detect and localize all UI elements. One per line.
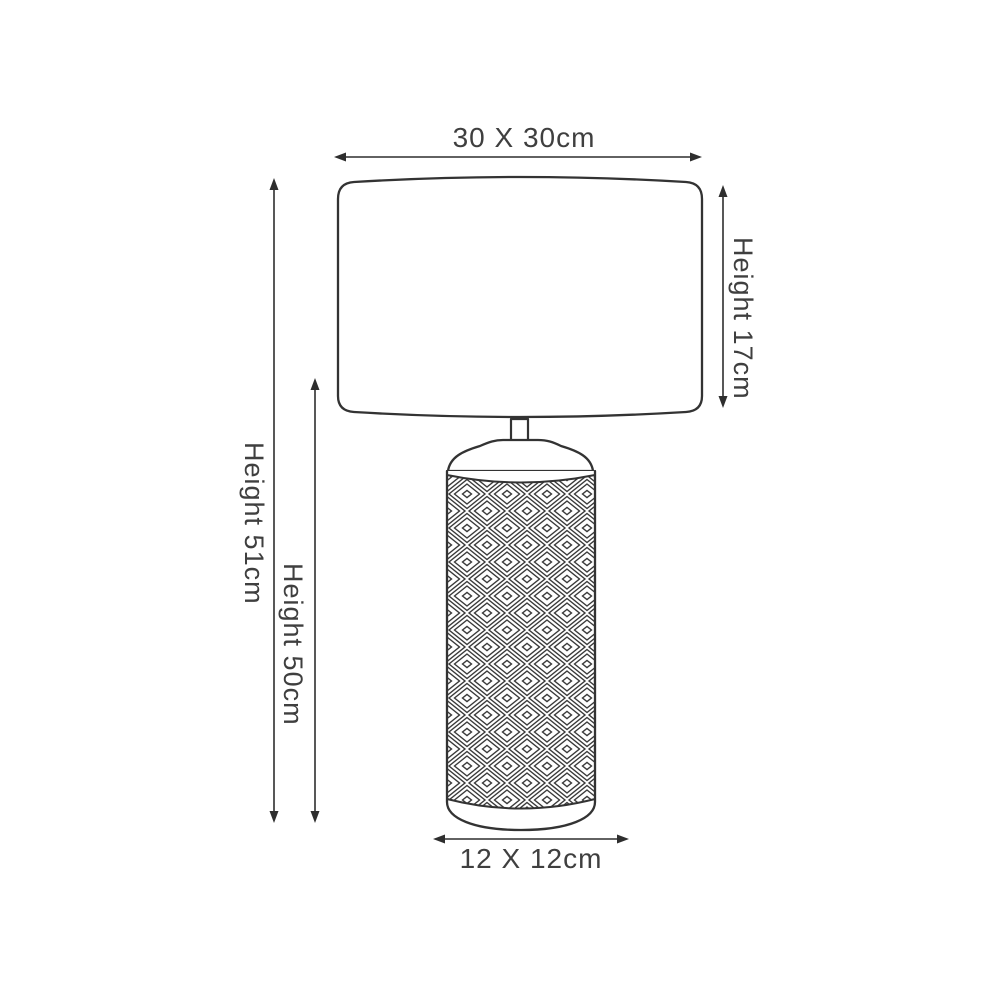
base-height-label: Height 50cm bbox=[279, 563, 306, 726]
dimension-diagram-canvas: 30 X 30cm Height 17cm Height 51cm Height… bbox=[0, 0, 1000, 1000]
shade-height-arrow bbox=[719, 185, 728, 408]
base-width-label: 12 X 12cm bbox=[381, 845, 681, 873]
base-height-arrow bbox=[311, 378, 320, 823]
lamp-rod bbox=[511, 419, 528, 441]
shade-width-label: 30 X 30cm bbox=[374, 124, 674, 152]
total-height-label: Height 51cm bbox=[240, 442, 267, 605]
lamp-figure bbox=[338, 177, 702, 830]
lampshade-outline bbox=[338, 177, 702, 417]
base-diamond-pattern bbox=[448, 476, 594, 809]
shade-width-arrow bbox=[334, 153, 702, 162]
base-cap bbox=[448, 440, 593, 471]
total-height-arrow bbox=[270, 178, 279, 823]
shade-height-label: Height 17cm bbox=[729, 237, 756, 400]
